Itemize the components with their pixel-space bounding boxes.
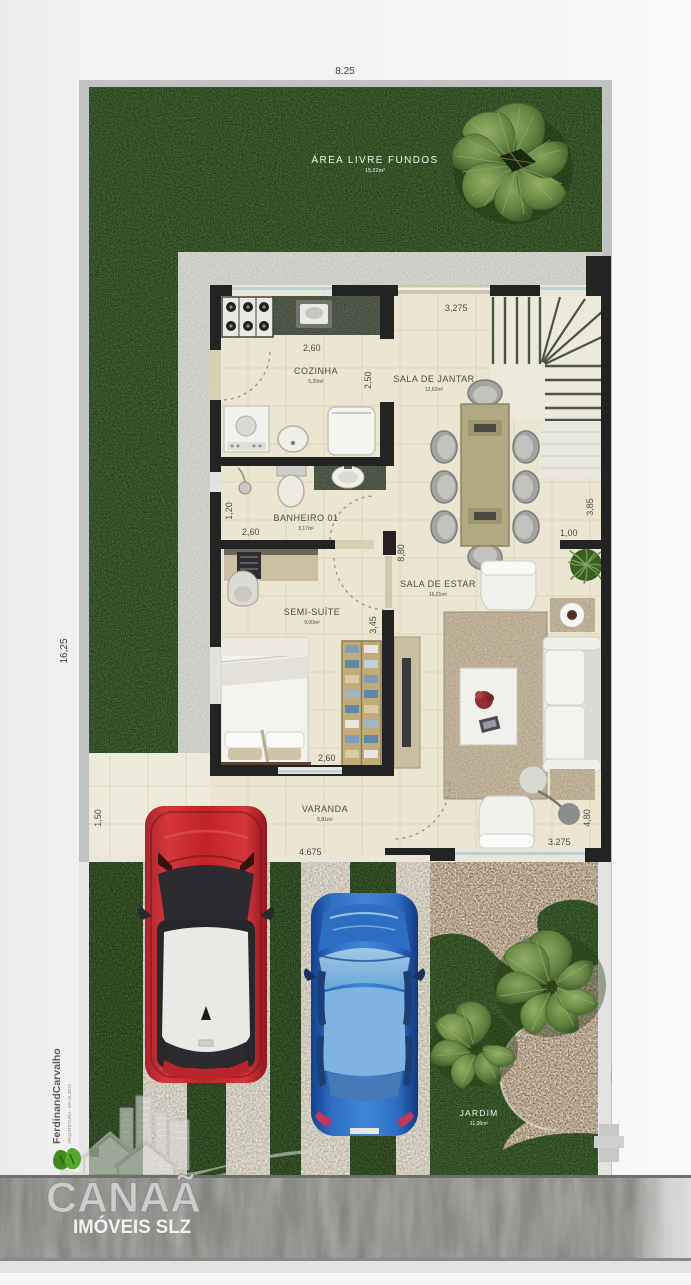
- svg-text:FerdinandCarvalho: FerdinandCarvalho: [51, 1048, 63, 1144]
- svg-text:2,60: 2,60: [242, 527, 260, 537]
- svg-text:1,00: 1,00: [560, 528, 578, 538]
- svg-text:3,45: 3,45: [368, 616, 378, 634]
- svg-text:5,20m²: 5,20m²: [308, 379, 324, 385]
- svg-text:8,80: 8,80: [396, 544, 406, 562]
- svg-text:SALA DE JANTAR: SALA DE JANTAR: [393, 374, 474, 384]
- svg-text:1,50: 1,50: [93, 809, 103, 827]
- svg-text:SALA DE ESTAR: SALA DE ESTAR: [400, 579, 476, 589]
- svg-text:1,20: 1,20: [224, 502, 234, 520]
- svg-text:JARDIM: JARDIM: [460, 1108, 499, 1118]
- svg-text:ARQUITETURA - MA-SLZ012: ARQUITETURA - MA-SLZ012: [67, 1083, 72, 1144]
- svg-text:COZINHA: COZINHA: [294, 366, 338, 376]
- svg-text:16,25: 16,25: [59, 638, 70, 663]
- svg-text:ÁREA LIVRE FUNDOS: ÁREA LIVRE FUNDOS: [311, 153, 438, 166]
- svg-text:VARANDA: VARANDA: [302, 804, 348, 814]
- svg-text:3,85: 3,85: [585, 498, 595, 516]
- svg-text:12,62m²: 12,62m²: [425, 387, 444, 393]
- svg-text:9,00m²: 9,00m²: [304, 620, 320, 626]
- svg-text:2,60: 2,60: [303, 343, 321, 353]
- svg-text:IMÓVEIS SLZ: IMÓVEIS SLZ: [73, 1216, 191, 1238]
- svg-text:8.25: 8.25: [335, 66, 355, 77]
- svg-text:BANHEIRO 01: BANHEIRO 01: [273, 513, 338, 523]
- svg-text:5,81m²: 5,81m²: [317, 817, 333, 823]
- svg-text:3,17m²: 3,17m²: [298, 526, 314, 532]
- svg-text:16,21m²: 16,21m²: [429, 592, 448, 598]
- svg-text:4,80: 4,80: [582, 809, 592, 827]
- svg-text:3.275: 3.275: [548, 837, 571, 847]
- svg-text:CANAÃ: CANAÃ: [46, 1174, 201, 1222]
- svg-text:SEMI-SUÍTE: SEMI-SUÍTE: [284, 607, 341, 617]
- svg-text:2,50: 2,50: [363, 371, 373, 389]
- svg-text:15.22m²: 15.22m²: [365, 168, 385, 174]
- svg-text:11,06m²: 11,06m²: [470, 1121, 488, 1127]
- svg-text:3,275: 3,275: [445, 303, 468, 313]
- svg-text:2,60: 2,60: [318, 753, 336, 763]
